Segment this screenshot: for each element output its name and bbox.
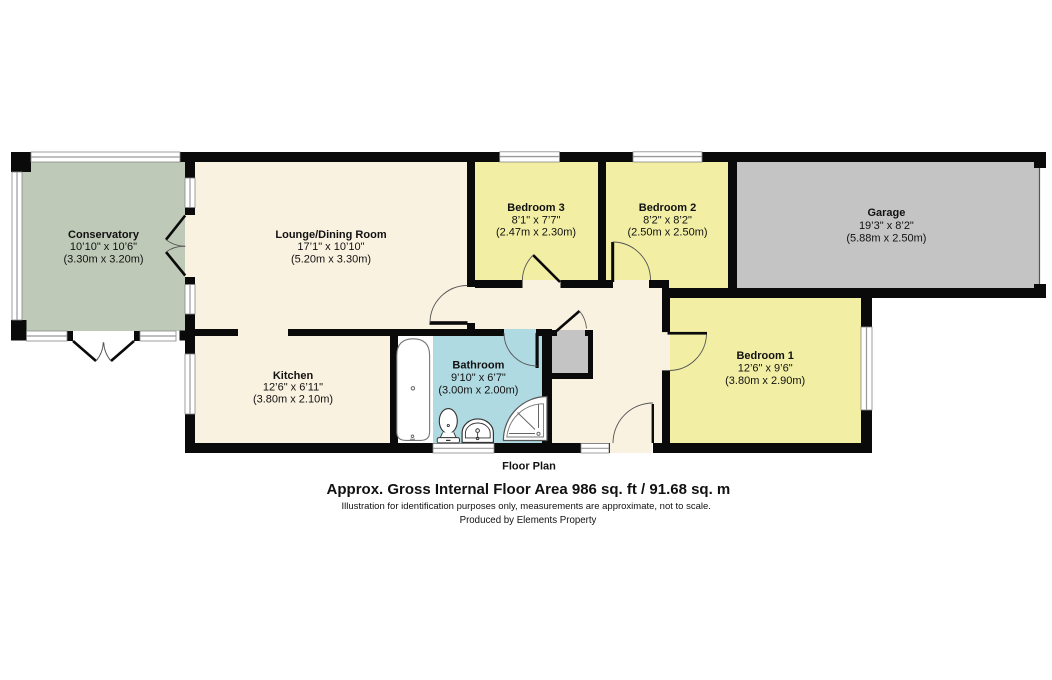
svg-text:10’10" x 10’6": 10’10" x 10’6": [70, 241, 137, 253]
svg-text:12’6" x 6’11": 12’6" x 6’11": [263, 382, 323, 394]
svg-text:Produced by Elements Property: Produced by Elements Property: [460, 515, 597, 526]
svg-text:(3.80m x 2.10m): (3.80m x 2.10m): [253, 393, 333, 405]
svg-text:Bathroom: Bathroom: [452, 360, 504, 372]
svg-text:(2.50m x 2.50m): (2.50m x 2.50m): [627, 227, 707, 239]
svg-text:Illustration for identificatio: Illustration for identification purposes…: [341, 501, 710, 512]
svg-text:Bedroom 1: Bedroom 1: [736, 350, 793, 362]
svg-text:Bedroom 2: Bedroom 2: [639, 202, 696, 214]
svg-text:17’1" x 10’10": 17’1" x 10’10": [297, 241, 364, 253]
svg-text:(5.88m x 2.50m): (5.88m x 2.50m): [846, 233, 926, 245]
svg-text:Garage: Garage: [867, 207, 905, 219]
svg-text:(5.20m x 3.30m): (5.20m x 3.30m): [291, 253, 371, 265]
svg-text:(3.30m x 3.20m): (3.30m x 3.20m): [63, 253, 143, 265]
svg-text:(3.80m x 2.90m): (3.80m x 2.90m): [725, 375, 805, 387]
svg-text:9’10" x 6’7": 9’10" x 6’7": [451, 372, 506, 384]
svg-text:8’1" x 7’7": 8’1" x 7’7": [512, 214, 561, 226]
svg-text:Conservatory: Conservatory: [68, 229, 140, 241]
svg-text:Floor Plan: Floor Plan: [502, 460, 556, 472]
svg-text:Approx. Gross Internal Floor A: Approx. Gross Internal Floor Area 986 sq…: [327, 481, 731, 498]
svg-text:Bedroom 3: Bedroom 3: [507, 202, 564, 214]
svg-text:12’6" x 9’6": 12’6" x 9’6": [738, 363, 793, 375]
svg-text:(2.47m x 2.30m): (2.47m x 2.30m): [496, 227, 576, 239]
svg-text:(3.00m x 2.00m): (3.00m x 2.00m): [438, 384, 518, 396]
svg-text:Kitchen: Kitchen: [273, 370, 314, 382]
svg-text:19’3" x 8’2": 19’3" x 8’2": [859, 220, 914, 232]
svg-text:8’2" x 8’2": 8’2" x 8’2": [643, 214, 692, 226]
svg-text:Lounge/Dining Room: Lounge/Dining Room: [275, 229, 386, 241]
